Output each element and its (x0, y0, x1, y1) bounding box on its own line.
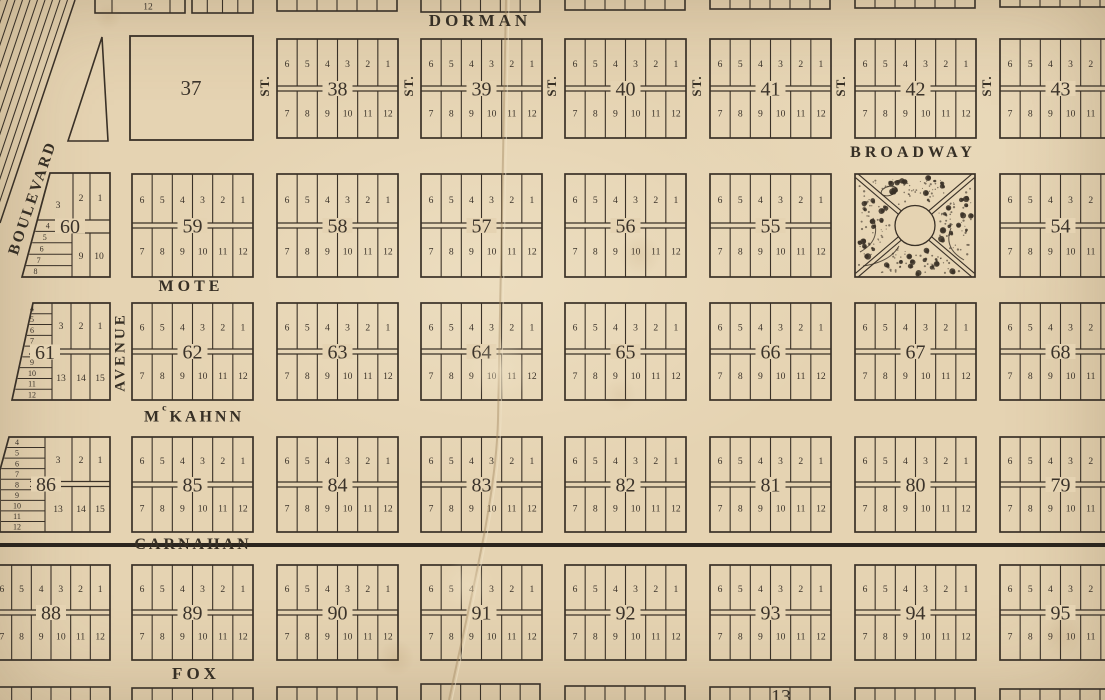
block-number: 94 (906, 603, 926, 625)
lot-number: 11 (651, 632, 660, 643)
lot-number: 8 (160, 247, 165, 258)
lot-number: 10 (631, 247, 641, 258)
lot-number: 1 (964, 584, 969, 595)
lot-number: 5 (305, 456, 310, 467)
lot-number: 7 (285, 247, 290, 258)
lot-number: 10 (1066, 504, 1076, 515)
lot-number: 8 (305, 504, 310, 515)
block-number: 93 (761, 603, 781, 625)
lot-number: 7 (0, 632, 4, 643)
lot-number: 8 (593, 109, 598, 120)
lot-number: 2 (78, 584, 83, 595)
lot-number: 4 (1048, 584, 1053, 595)
lot-number: 3 (778, 456, 783, 467)
lot-number: 2 (365, 323, 370, 334)
lot-number: 6 (718, 456, 723, 467)
lot-number: 3 (778, 584, 783, 595)
lot-number: 5 (305, 323, 310, 334)
lot-number: 3 (56, 200, 61, 211)
block-88: 65432178910111288 (0, 565, 110, 660)
lot-number: 3 (923, 584, 928, 595)
partial-block-bottom (1000, 689, 1105, 700)
lot-number: 3 (778, 59, 783, 70)
lot-number: 8 (738, 632, 743, 643)
block-number: 90 (328, 603, 348, 625)
lot-number: 2 (653, 195, 658, 206)
lot-number: 2 (1088, 456, 1093, 467)
block-number: 95 (1051, 603, 1071, 625)
lot-number: 14 (76, 504, 86, 515)
lot-number: 5 (160, 195, 165, 206)
lot-number: 3 (489, 195, 494, 206)
lot-number: 11 (507, 632, 516, 643)
lot-number: 3 (489, 584, 494, 595)
block-number: 80 (906, 475, 926, 497)
lot-number: 9 (325, 109, 330, 120)
lot-number: 5 (1028, 323, 1033, 334)
block-66: 65432178910111266 (710, 303, 831, 400)
lot-number: 6 (573, 195, 578, 206)
lot-number: 3 (345, 59, 350, 70)
lot-number: 1 (674, 456, 679, 467)
lot-number: 11 (941, 504, 950, 515)
lot-number: 9 (613, 632, 618, 643)
lot-number: 9 (469, 371, 474, 382)
block-39: 65432178910111239 (421, 39, 542, 138)
lot-number: 4 (903, 584, 908, 595)
lot-number: 10 (94, 251, 104, 262)
lot-number: 11 (76, 632, 85, 643)
block-number: 64 (472, 342, 492, 364)
lot-number: 9 (903, 371, 908, 382)
lot-number: 6 (429, 584, 434, 595)
lot-number: 9 (1048, 371, 1053, 382)
lot-number: 5 (160, 584, 165, 595)
lot-number: 8 (19, 632, 24, 643)
lot-number: 11 (363, 109, 372, 120)
block-68: 65432178910111268 (1000, 303, 1105, 400)
street-label-carnahan: CARNAHAN (134, 536, 251, 554)
lot-number: 2 (509, 59, 514, 70)
lot-number: 7 (573, 504, 578, 515)
block-number: 79 (1051, 475, 1071, 497)
lot-number: 1 (241, 195, 246, 206)
lot-number: 5 (160, 323, 165, 334)
lot-number: 2 (943, 323, 948, 334)
lot-number: 11 (796, 632, 805, 643)
lot-number: 4 (758, 584, 763, 595)
block-number: 67 (906, 342, 926, 364)
lot-number: 5 (1028, 59, 1033, 70)
partial-block-top (710, 0, 830, 9)
lot-number: 7 (1008, 109, 1013, 120)
lot-number: 4 (325, 456, 330, 467)
lot-number: 3 (633, 59, 638, 70)
lot-number: 7 (140, 504, 145, 515)
lot-number: 12 (527, 504, 537, 515)
lot-number: 2 (943, 59, 948, 70)
partial-block-bottom (565, 686, 685, 700)
lot-number: 5 (883, 59, 888, 70)
lot-number: 10 (1066, 371, 1076, 382)
lot-number: 8 (160, 371, 165, 382)
lot-number: 1 (819, 195, 824, 206)
block-67: 65432178910111267 (855, 303, 976, 400)
lot-number: 10 (776, 109, 786, 120)
mckahnn-sup: c (162, 402, 167, 413)
lot-number: 10 (776, 371, 786, 382)
lot-number: 11 (363, 504, 372, 515)
lot-number: 1 (819, 59, 824, 70)
lot-number: 7 (429, 109, 434, 120)
lot-number: 3 (489, 456, 494, 467)
lot-number: 8 (449, 504, 454, 515)
lot-number: 11 (363, 247, 372, 258)
block-58: 65432178910111258 (277, 174, 398, 277)
block-89: 65432178910111289 (132, 565, 253, 660)
block-91: 65432178910111291 (421, 565, 542, 660)
lot-number: 13 (56, 373, 66, 384)
lot-number: 4 (903, 323, 908, 334)
lot-number: 12 (671, 247, 681, 258)
block-number: 66 (761, 342, 781, 364)
lot-number: 11 (363, 371, 372, 382)
lot-number: 11 (796, 109, 805, 120)
lot-number: 9 (469, 504, 474, 515)
block-65: 65432178910111265 (565, 303, 686, 400)
block-84: 65432178910111284 (277, 437, 398, 532)
lot-number: 5 (449, 195, 454, 206)
lot-number: 1 (674, 195, 679, 206)
block-number: 43 (1051, 79, 1071, 101)
lot-number: 9 (469, 109, 474, 120)
lot-number: 7 (718, 109, 723, 120)
lot-number: 2 (798, 456, 803, 467)
lot-number: 7 (37, 256, 41, 265)
lot-number: 3 (633, 456, 638, 467)
lot-number: 10 (487, 632, 497, 643)
lot-number: 6 (429, 195, 434, 206)
block-number: 82 (616, 475, 636, 497)
lot-number: 2 (1088, 323, 1093, 334)
lot-number: 6 (285, 323, 290, 334)
lot-number: 5 (738, 195, 743, 206)
lot-number: 2 (220, 323, 225, 334)
lot-number: 2 (365, 584, 370, 595)
lot-number: 12 (671, 504, 681, 515)
lot-number: 5 (19, 584, 24, 595)
lot-number: 10 (1066, 247, 1076, 258)
lot-number: 4 (1048, 456, 1053, 467)
lot-number: 2 (509, 323, 514, 334)
lot-number: 4 (758, 456, 763, 467)
lot-number: 5 (738, 456, 743, 467)
partial-block-top (277, 0, 397, 11)
lot-number: 5 (593, 195, 598, 206)
lot-number: 8 (160, 632, 165, 643)
lot-number: 10 (198, 371, 208, 382)
lot-number: 10 (921, 371, 931, 382)
lot-number: 4 (180, 323, 185, 334)
lot-number: 7 (429, 632, 434, 643)
lot-number: 12 (238, 632, 248, 643)
street-label-st: ST. (979, 75, 995, 96)
lot-number: 7 (285, 371, 290, 382)
lot-number: 1 (819, 584, 824, 595)
lot-number: 10 (487, 109, 497, 120)
lot-number: 9 (613, 504, 618, 515)
lot-number: 4 (903, 456, 908, 467)
lot-number: 7 (140, 247, 145, 258)
lot-number: 8 (883, 632, 888, 643)
lot-number: 7 (863, 109, 868, 120)
lot-number: 4 (469, 195, 474, 206)
lot-number: 7 (140, 632, 145, 643)
block-number: 54 (1051, 216, 1071, 238)
lot-number: 1 (674, 584, 679, 595)
lot-number: 3 (1068, 323, 1073, 334)
lot-number: 8 (883, 371, 888, 382)
lot-number: 10 (487, 371, 497, 382)
lot-number: 8 (738, 109, 743, 120)
lot-number: 7 (573, 632, 578, 643)
lot-number: 9 (79, 251, 84, 262)
lot-number: 4 (758, 195, 763, 206)
lot-number: 11 (218, 371, 227, 382)
partial-block-top (1000, 0, 1105, 7)
lot-number: 8 (883, 109, 888, 120)
lot-number: 10 (343, 371, 353, 382)
lot-number: 11 (363, 632, 372, 643)
lot-number: 5 (160, 456, 165, 467)
lot-number: 4 (325, 584, 330, 595)
lot-number: 12 (143, 3, 153, 13)
block-63: 65432178910111263 (277, 303, 398, 400)
lot-number: 2 (943, 584, 948, 595)
block-40: 65432178910111240 (565, 39, 686, 138)
lot-number: 8 (449, 632, 454, 643)
lot-number: 3 (58, 584, 63, 595)
lot-number: 3 (345, 456, 350, 467)
lot-number: 4 (469, 59, 474, 70)
lot-number: 12 (816, 247, 826, 258)
lot-number: 5 (1028, 456, 1033, 467)
lot-number: 8 (305, 632, 310, 643)
lot-number: 2 (365, 195, 370, 206)
lot-number: 7 (1008, 247, 1013, 258)
lot-number: 12 (13, 523, 21, 532)
lot-number: 9 (758, 632, 763, 643)
lot-number: 6 (30, 326, 34, 335)
lot-number: 4 (613, 323, 618, 334)
lot-number: 1 (98, 193, 103, 204)
lot-number: 6 (573, 584, 578, 595)
lot-number: 6 (718, 323, 723, 334)
lot-number: 7 (718, 504, 723, 515)
lot-number: 7 (863, 504, 868, 515)
lot-number: 12 (238, 371, 248, 382)
lot-number: 8 (449, 371, 454, 382)
lot-number: 5 (30, 315, 34, 324)
lot-number: 12 (383, 247, 393, 258)
block-number: 40 (616, 79, 636, 101)
block-number: 81 (761, 475, 781, 497)
lot-number: 1 (530, 195, 535, 206)
lot-number: 12 (383, 504, 393, 515)
lot-number: 7 (140, 371, 145, 382)
lot-number: 10 (776, 632, 786, 643)
lot-number: 4 (758, 59, 763, 70)
lot-number: 6 (285, 59, 290, 70)
lot-number: 6 (140, 323, 145, 334)
lot-number: 1 (674, 323, 679, 334)
lot-number: 3 (923, 456, 928, 467)
lot-number: 5 (883, 584, 888, 595)
lot-number: 10 (343, 109, 353, 120)
lot-number: 9 (469, 632, 474, 643)
lot-number: 7 (1008, 632, 1013, 643)
lot-number: 1 (98, 321, 103, 332)
lot-number: 7 (718, 632, 723, 643)
block-number: 57 (472, 216, 492, 238)
lot-number: 1 (386, 323, 391, 334)
lot-number: 9 (325, 504, 330, 515)
lot-number: 9 (613, 247, 618, 258)
street-label-mckahnn: McKAHNN (144, 407, 244, 426)
lot-number: 4 (15, 438, 19, 447)
lot-number: 2 (943, 456, 948, 467)
lot-number: 12 (816, 632, 826, 643)
block-85: 65432178910111285 (132, 437, 253, 532)
lot-number: 6 (0, 584, 4, 595)
lot-number: 4 (613, 195, 618, 206)
lot-number: 4 (39, 584, 44, 595)
lot-number: 2 (1088, 59, 1093, 70)
lot-number: 4 (469, 456, 474, 467)
lot-number: 11 (28, 380, 36, 389)
lot-number: 8 (593, 632, 598, 643)
lot-number: 8 (593, 247, 598, 258)
lot-number: 2 (509, 456, 514, 467)
lot-number: 6 (40, 244, 44, 253)
block-54: 65432178910111254 (1000, 174, 1105, 277)
block-number: 13 (771, 686, 791, 700)
partial-block-bottom: 13 (710, 686, 830, 700)
lot-number: 7 (718, 247, 723, 258)
block-37: 37 (130, 36, 253, 140)
lot-number: 8 (738, 247, 743, 258)
lot-number: 6 (718, 195, 723, 206)
street-label-fox: FOX (172, 664, 220, 684)
lot-number: 3 (200, 584, 205, 595)
lot-number: 8 (449, 247, 454, 258)
lot-number: 11 (507, 247, 516, 258)
lot-number: 10 (1066, 632, 1076, 643)
block-number: 63 (328, 342, 348, 364)
lot-number: 11 (1086, 632, 1095, 643)
lot-number: 8 (593, 504, 598, 515)
lot-number: 4 (325, 59, 330, 70)
lot-number: 2 (220, 584, 225, 595)
lot-number: 1 (530, 323, 535, 334)
lot-number: 8 (1028, 247, 1033, 258)
lot-number: 5 (593, 584, 598, 595)
lot-number: 4 (758, 323, 763, 334)
lot-number: 3 (1068, 584, 1073, 595)
lot-number: 9 (180, 371, 185, 382)
lot-number: 1 (386, 584, 391, 595)
lot-number: 6 (718, 59, 723, 70)
lot-number: 9 (1048, 504, 1053, 515)
lot-number: 10 (343, 632, 353, 643)
lot-number: 4 (325, 195, 330, 206)
lot-number: 3 (633, 323, 638, 334)
lot-number: 5 (738, 59, 743, 70)
lot-number: 7 (1008, 371, 1013, 382)
lot-number: 9 (30, 358, 34, 367)
block-55: 65432178910111255 (710, 174, 831, 277)
lot-number: 6 (718, 584, 723, 595)
lot-number: 12 (961, 109, 971, 120)
lot-number: 1 (241, 456, 246, 467)
lot-number: 12 (816, 109, 826, 120)
lot-number: 8 (34, 267, 38, 276)
lot-number: 12 (527, 109, 537, 120)
lot-number: 9 (903, 109, 908, 120)
lot-number: 11 (507, 109, 516, 120)
lot-number: 11 (1086, 247, 1095, 258)
street-label-avenue: AVENUE (113, 312, 130, 391)
block-95: 65432178910111295 (1000, 565, 1105, 660)
block-57: 65432178910111257 (421, 174, 542, 277)
lot-number: 9 (903, 632, 908, 643)
lot-number: 6 (429, 456, 434, 467)
lot-number: 2 (1088, 584, 1093, 595)
lot-number: 10 (198, 632, 208, 643)
lot-number: 6 (429, 59, 434, 70)
lot-number: 10 (921, 109, 931, 120)
lot-number: 5 (738, 323, 743, 334)
lot-number: 2 (798, 195, 803, 206)
lot-number: 5 (449, 59, 454, 70)
block-number: 86 (36, 474, 56, 496)
lot-number: 3 (200, 323, 205, 334)
lot-number: 9 (1048, 632, 1053, 643)
lot-number: 5 (1028, 195, 1033, 206)
lot-number: 5 (593, 323, 598, 334)
lot-number: 11 (218, 504, 227, 515)
lot-number: 9 (1048, 109, 1053, 120)
lot-number: 10 (631, 632, 641, 643)
block-93: 65432178910111293 (710, 565, 831, 660)
partial-block-bottom (0, 687, 110, 700)
lot-number: 6 (285, 584, 290, 595)
lot-number: 6 (140, 584, 145, 595)
lot-number: 3 (923, 59, 928, 70)
lot-number: 5 (305, 195, 310, 206)
lot-number: 4 (469, 323, 474, 334)
lot-number: 5 (43, 233, 47, 242)
partial-block-top (565, 0, 685, 10)
lot-number: 6 (863, 59, 868, 70)
block-86: 45678910111232113141586 (0, 437, 110, 532)
lot-number: 9 (469, 247, 474, 258)
block-43: 65432178910111243 (1000, 39, 1105, 138)
lot-number: 8 (305, 371, 310, 382)
lot-number: 1 (964, 323, 969, 334)
lot-number: 12 (671, 632, 681, 643)
lot-number: 8 (15, 480, 19, 489)
